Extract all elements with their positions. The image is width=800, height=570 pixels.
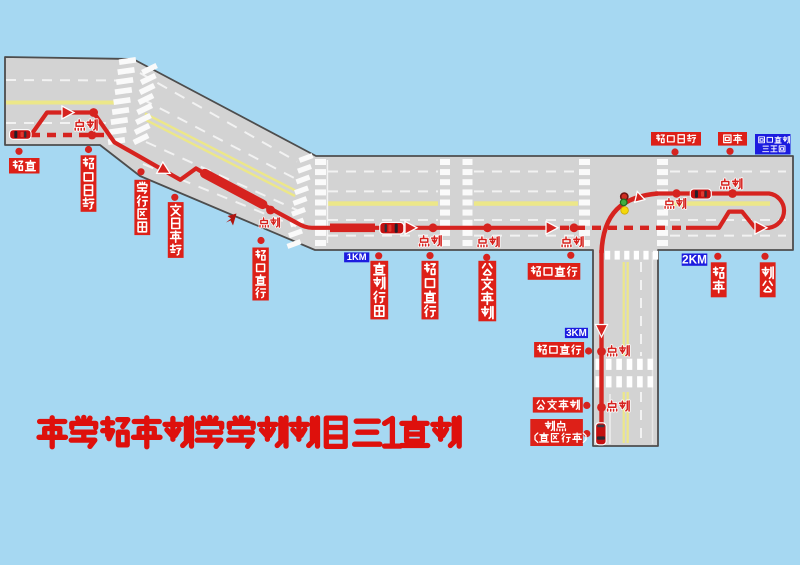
svg-text:3KM: 3KM (566, 328, 587, 339)
svg-text:1KM: 1KM (347, 251, 367, 262)
svg-text:2KM: 2KM (682, 253, 707, 267)
